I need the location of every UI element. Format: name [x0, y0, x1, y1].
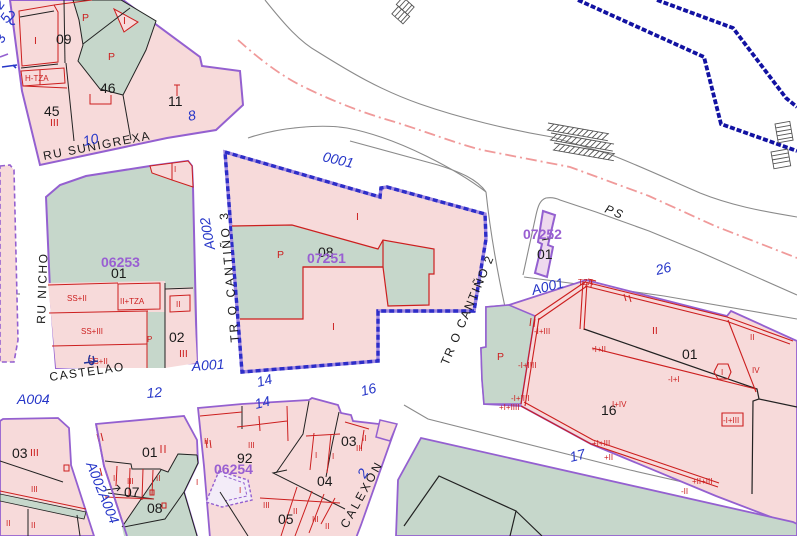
svg-text:III: III: [263, 501, 270, 510]
svg-text:11: 11: [168, 93, 183, 109]
svg-text:02: 02: [169, 329, 185, 345]
svg-text:-I+I: -I+I: [668, 375, 680, 384]
svg-text:III: III: [179, 348, 188, 360]
svg-text:-I+III: -I+III: [723, 416, 739, 425]
svg-text:+II: +II: [604, 453, 613, 462]
svg-text:I: I: [721, 368, 723, 377]
svg-text:-I+IIII: -I+IIII: [511, 394, 529, 403]
svg-text:III: III: [50, 117, 59, 129]
svg-text:III: III: [312, 515, 319, 524]
svg-text:III: III: [30, 447, 39, 459]
svg-text:07: 07: [124, 484, 140, 500]
svg-text:I: I: [315, 451, 317, 460]
svg-text:I+IV: I+IV: [612, 400, 627, 409]
svg-text:II: II: [113, 474, 117, 483]
svg-text:II: II: [362, 434, 366, 443]
svg-text:08: 08: [147, 500, 163, 516]
svg-text:06254: 06254: [214, 461, 253, 477]
svg-text:II+TZA: II+TZA: [120, 297, 145, 306]
svg-text:A001: A001: [190, 356, 225, 374]
svg-text:A004: A004: [16, 391, 50, 407]
svg-text:I: I: [34, 35, 37, 47]
svg-text:I: I: [174, 165, 176, 174]
svg-text:II: II: [176, 300, 180, 309]
svg-text:I: I: [239, 486, 241, 495]
svg-text:P: P: [147, 335, 152, 344]
svg-text:III: III: [127, 477, 134, 486]
svg-text:01: 01: [537, 246, 553, 262]
svg-text:I: I: [356, 211, 359, 223]
svg-text:II: II: [750, 333, 754, 342]
svg-text:SS+III: SS+III: [81, 327, 103, 336]
svg-text:I: I: [332, 321, 335, 333]
svg-text:05: 05: [278, 511, 294, 527]
svg-text:II: II: [293, 507, 297, 516]
svg-text:-II: -II: [681, 487, 688, 496]
svg-text:07252: 07252: [523, 226, 562, 242]
svg-text:IV: IV: [752, 366, 760, 375]
svg-text:III: III: [31, 485, 38, 494]
svg-text:P: P: [108, 51, 115, 63]
svg-text:I: I: [196, 478, 198, 487]
svg-text:P: P: [497, 351, 504, 363]
svg-text:07251: 07251: [307, 250, 346, 266]
svg-text:I: I: [332, 452, 334, 461]
svg-text:03: 03: [12, 445, 28, 461]
svg-text:II: II: [31, 521, 35, 530]
svg-text:04: 04: [317, 473, 333, 489]
svg-text:+I+IIII: +I+IIII: [499, 403, 519, 412]
svg-text:P: P: [82, 12, 89, 24]
svg-text:III: III: [356, 444, 363, 453]
svg-text:RU NICHO: RU NICHO: [34, 252, 50, 324]
svg-text:H-TZA: H-TZA: [25, 74, 49, 83]
svg-text:SS+II: SS+II: [67, 294, 87, 303]
svg-text:01: 01: [142, 444, 158, 460]
svg-text:46: 46: [100, 80, 116, 96]
svg-text:P: P: [277, 249, 284, 261]
svg-text:12: 12: [146, 384, 163, 401]
svg-text:-I+II: -I+II: [592, 345, 606, 354]
svg-text:III: III: [248, 441, 255, 450]
svg-text:II: II: [652, 325, 658, 337]
svg-text:I: I: [123, 15, 126, 27]
svg-text:03: 03: [341, 433, 357, 449]
svg-text:09: 09: [56, 31, 72, 47]
svg-text:II: II: [156, 474, 160, 483]
svg-text:-I+III: -I+III: [534, 327, 550, 336]
svg-text:II: II: [6, 519, 10, 528]
svg-text:+I+III: +I+III: [592, 439, 610, 448]
svg-text:II: II: [325, 522, 329, 531]
svg-text:+II+III: +II+III: [692, 477, 712, 486]
svg-text:01: 01: [682, 346, 698, 362]
svg-text:01: 01: [111, 265, 127, 281]
svg-text:-I+IIII: -I+IIII: [518, 361, 536, 370]
